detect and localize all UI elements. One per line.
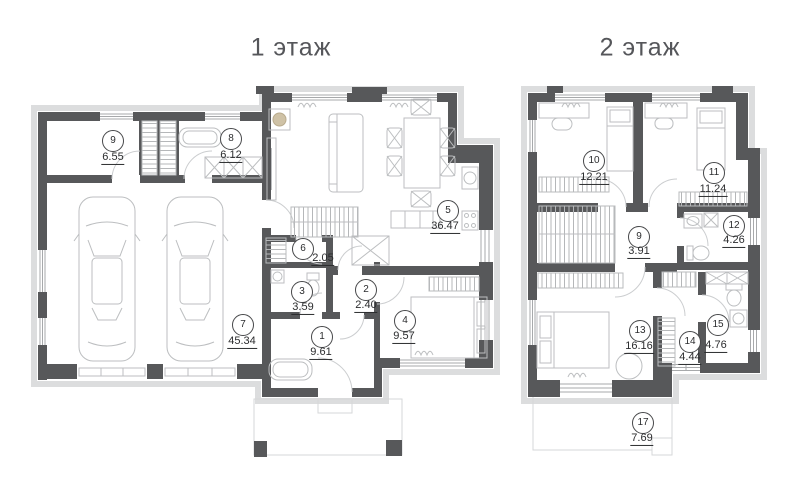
stairs [539,206,615,263]
wardrobe [429,277,479,291]
sink [730,310,747,327]
window [751,218,757,245]
bed [411,297,487,358]
kitchen-sink [462,167,478,189]
radiator-mark [568,373,586,377]
car [162,197,228,361]
radiator-mark [562,103,580,107]
window [530,120,535,152]
room-number-badge: 2 [355,279,377,301]
radiator-mark [390,103,408,107]
room-area-label: 16.16 [624,340,654,354]
bed [607,107,633,171]
room-area-label: 9.57 [392,330,415,344]
shelf [662,272,696,287]
wardrobe [538,273,623,288]
fireplace [269,109,290,130]
shelf-box [706,272,748,284]
window [560,384,612,392]
kitchen-stove [462,211,478,230]
room-area-label: 6.55 [101,151,124,165]
bed [697,108,725,170]
terrace-door [672,365,700,371]
room-number-badge: 15 [707,314,729,336]
room-area-label: 45.34 [227,335,257,349]
floor-plans-page: 1 этаж 2 этаж 9 6.55 8 6.12 5 36.47 6 2.… [0,0,800,501]
stairs [291,207,358,237]
floor1-doors [112,151,404,392]
toilet [726,284,742,306]
room-area-label: 6.12 [219,149,242,163]
room-number-badge: 10 [583,150,605,172]
window [40,250,45,292]
room-area-label: 11.24 [699,183,728,197]
room-area-label: 2.40 [354,299,377,313]
floor-plan-drawing [0,0,800,501]
bed [537,312,609,368]
radiator-mark [298,103,316,107]
window [481,230,489,262]
radiator-mark [415,351,433,355]
room-number-badge: 8 [220,128,242,150]
washer [704,213,718,227]
room-number-badge: 4 [394,310,416,332]
room-area-label: 3.59 [291,301,314,315]
room-number-badge: 7 [232,314,254,336]
room-number-badge: 9 [102,130,124,152]
garage-door [79,368,145,376]
room-area-label: 4.44 [678,351,701,365]
room-area-label: 4.26 [722,234,745,248]
car [74,197,140,361]
window [652,95,700,100]
bathtub [179,128,221,147]
room-number-badge: 11 [703,162,725,184]
radiator-mark [660,103,678,107]
sink [271,270,284,283]
wardrobe [266,238,286,263]
porch [254,399,402,457]
room-area-label: 4.76 [704,339,727,353]
sofa [329,114,363,192]
wardrobe [658,318,675,366]
window [100,114,133,119]
window [555,95,605,100]
armchair [616,353,642,379]
window [205,114,240,119]
window [40,318,45,345]
room-number-badge: 14 [679,331,701,353]
room-number-badge: 5 [437,200,459,222]
dining-table [387,99,455,207]
room-area-label: 2.05 [311,252,334,266]
appliance-box [352,236,389,265]
window [292,95,347,100]
room-area-label: 9.61 [309,346,332,360]
room-number-badge: 17 [632,412,654,434]
toilet [687,246,709,260]
floor2-title: 2 этаж [600,34,681,63]
room-number-badge: 1 [311,326,333,348]
room-area-label: 12.21 [579,171,609,185]
floor1-title: 1 этаж [251,34,332,63]
room-area-label: 3.91 [627,245,650,259]
room-area-label: 36.47 [430,220,460,234]
bathtub [269,359,312,380]
window [751,330,757,352]
desk [539,103,589,130]
garage-door [165,368,235,376]
room-number-badge: 13 [629,320,651,342]
room-area-label: 7.69 [630,432,653,446]
window [530,300,535,345]
window [400,360,465,366]
room-number-badge: 3 [291,281,313,303]
